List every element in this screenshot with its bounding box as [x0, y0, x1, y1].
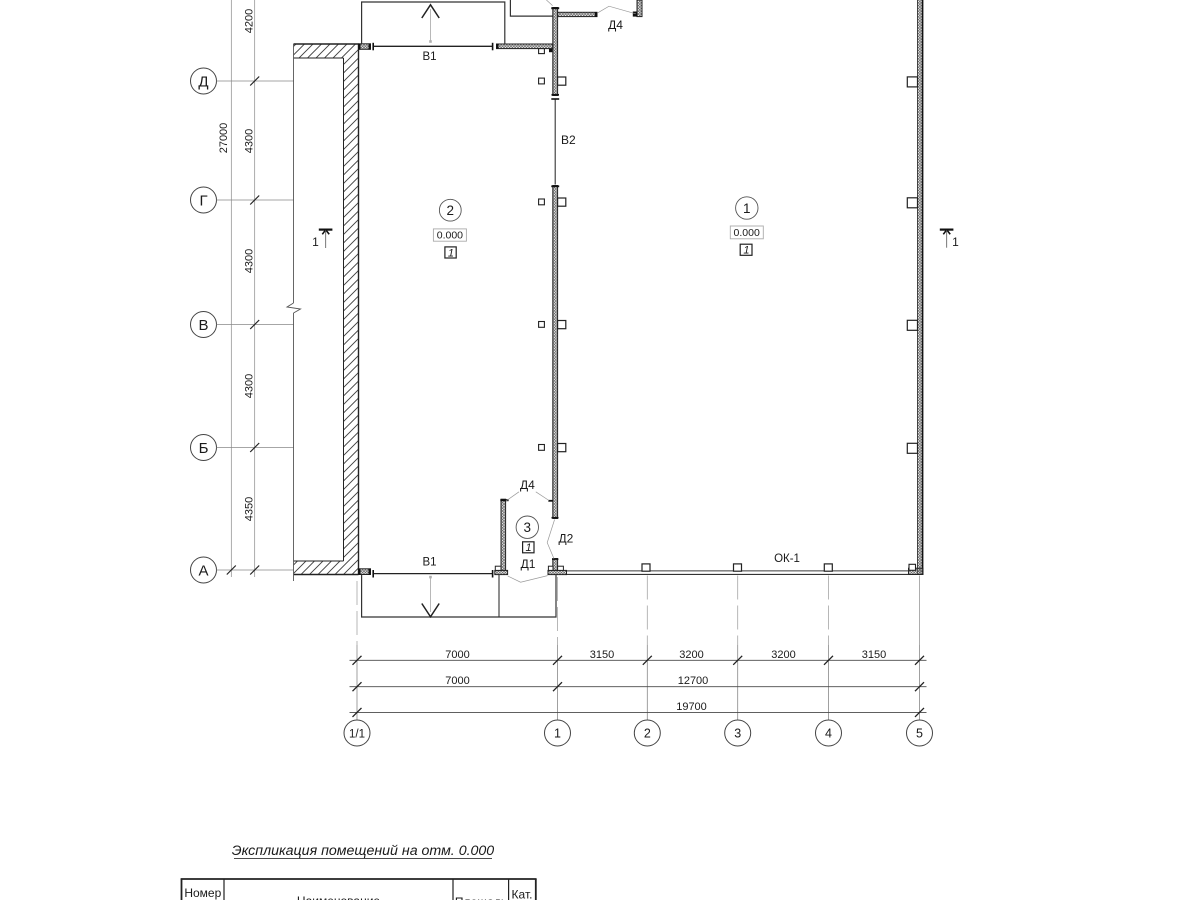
svg-text:4350: 4350 [244, 497, 256, 521]
svg-text:В1: В1 [422, 557, 436, 569]
svg-text:4: 4 [825, 727, 832, 741]
svg-text:1: 1 [743, 201, 751, 216]
svg-text:5: 5 [916, 727, 923, 741]
svg-text:3: 3 [734, 727, 741, 741]
svg-text:Д4: Д4 [608, 18, 623, 32]
svg-text:А: А [198, 562, 208, 579]
svg-text:19700: 19700 [676, 701, 707, 713]
svg-text:Д4: Д4 [520, 478, 535, 492]
svg-text:Площадь: Площадь [455, 895, 507, 900]
svg-text:1: 1 [743, 245, 749, 257]
svg-text:Б: Б [199, 440, 209, 457]
svg-text:3: 3 [524, 520, 532, 535]
svg-text:7000: 7000 [445, 675, 469, 687]
svg-text:12700: 12700 [678, 675, 709, 687]
svg-text:3150: 3150 [862, 649, 886, 661]
svg-text:3200: 3200 [771, 649, 795, 661]
svg-text:Наименование: Наименование [297, 894, 381, 900]
svg-text:Д: Д [198, 73, 208, 90]
svg-text:4300: 4300 [244, 374, 256, 398]
svg-text:Д2: Д2 [559, 531, 574, 545]
svg-text:1/1: 1/1 [349, 729, 365, 741]
svg-text:1: 1 [952, 235, 959, 249]
svg-text:27000: 27000 [218, 123, 230, 154]
svg-text:0.000: 0.000 [437, 230, 463, 242]
svg-text:В2: В2 [561, 133, 576, 147]
svg-text:Номер: Номер [184, 886, 221, 900]
svg-text:Г: Г [199, 192, 207, 209]
svg-text:2: 2 [644, 727, 651, 741]
svg-text:1: 1 [526, 542, 532, 554]
svg-text:Кат.: Кат. [512, 888, 533, 900]
svg-text:3150: 3150 [590, 649, 614, 661]
svg-text:7000: 7000 [445, 649, 469, 661]
svg-text:4300: 4300 [244, 249, 256, 273]
svg-text:0.000: 0.000 [734, 227, 760, 239]
svg-text:4300: 4300 [244, 129, 256, 153]
svg-text:3200: 3200 [679, 649, 703, 661]
svg-text:Экспликация помещений на отм.: Экспликация помещений на отм. 0.000 [232, 843, 495, 859]
svg-text:2: 2 [447, 203, 455, 218]
svg-text:ОК-1: ОК-1 [774, 553, 800, 565]
svg-text:В: В [198, 317, 208, 334]
svg-text:1: 1 [448, 247, 454, 259]
svg-text:Д1: Д1 [521, 557, 536, 571]
svg-text:В1: В1 [422, 51, 436, 63]
svg-text:1: 1 [554, 727, 561, 741]
svg-text:1: 1 [312, 235, 319, 249]
svg-text:4200: 4200 [244, 9, 256, 33]
